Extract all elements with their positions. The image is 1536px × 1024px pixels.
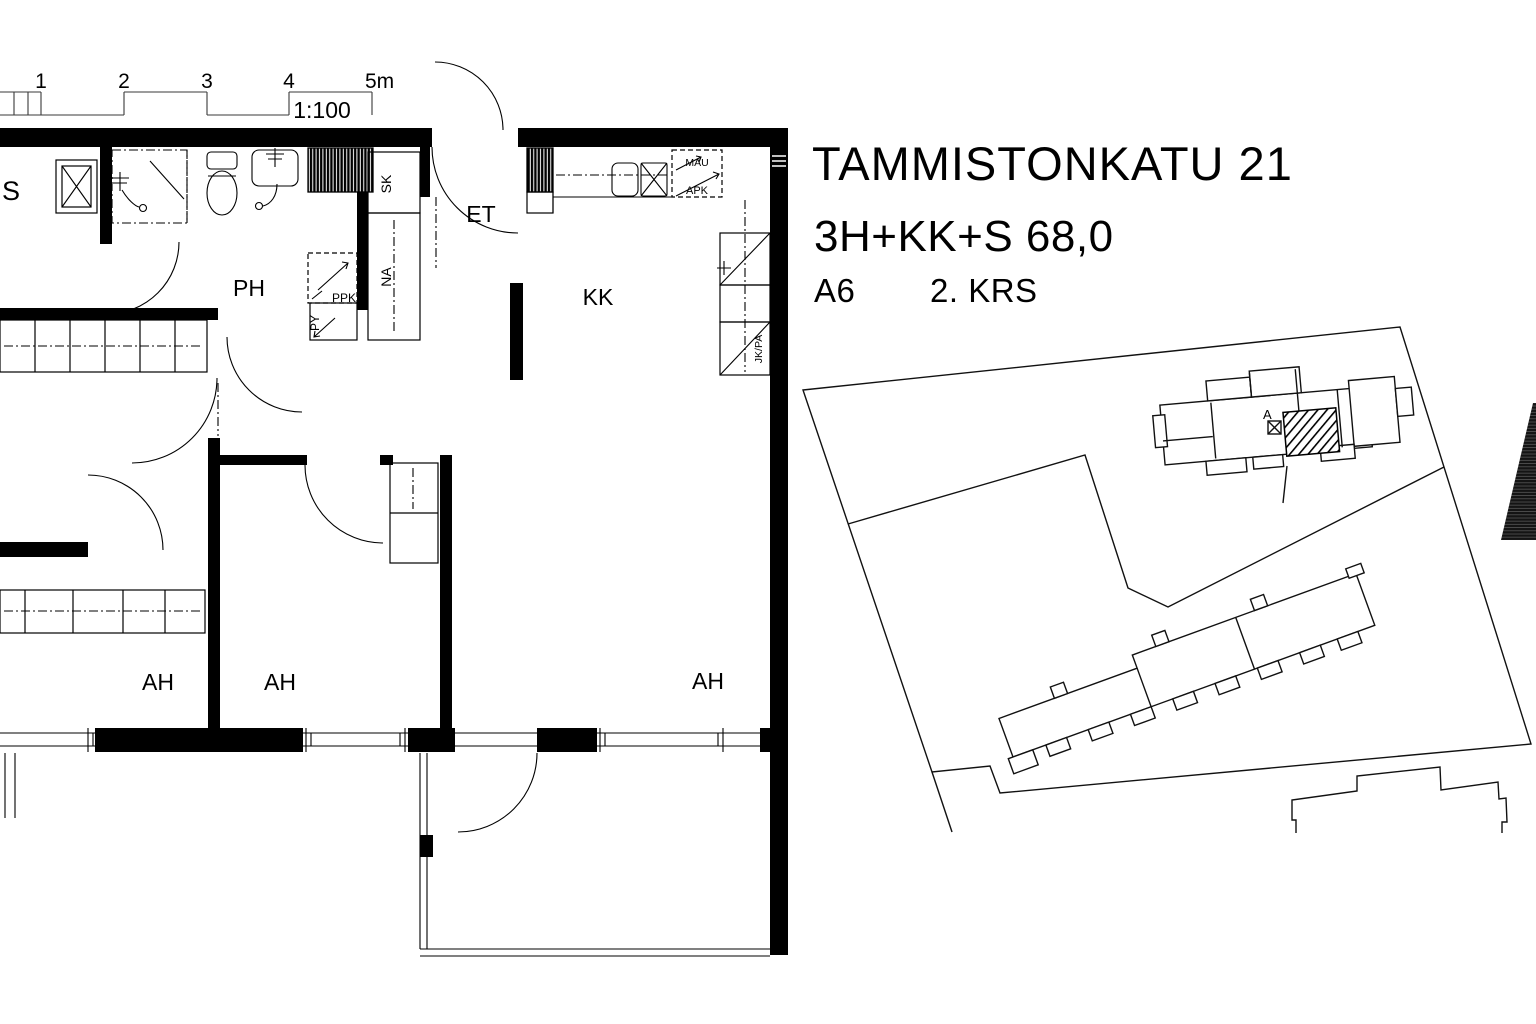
wall-thin-segment xyxy=(725,733,760,746)
scale-tick-2: 2 xyxy=(118,70,130,93)
window-room1 xyxy=(0,728,95,752)
shower-hose xyxy=(122,190,139,207)
building-block xyxy=(1249,367,1301,397)
room2-door-arc xyxy=(305,465,383,543)
wall-kitchen-stub xyxy=(510,283,523,380)
room-labels: S PH ET KK AH AH AH SK NA PPK PY MAU APK… xyxy=(2,157,765,695)
architectural-drawing-sheet: 1 2 3 4 5m 1:100 xyxy=(0,0,1536,1024)
title-layout-area: 3H+KK+S 68,0 xyxy=(814,212,1114,261)
wall-top-left xyxy=(0,128,432,147)
label-dishwasher: APK xyxy=(686,185,709,197)
shower-slope-line xyxy=(150,161,184,199)
title-address: TAMMISTONKATU 21 xyxy=(812,137,1293,190)
room-label-kitchenette: KK xyxy=(583,284,614,310)
room-label-room3: AH xyxy=(692,668,724,694)
site-building-long xyxy=(985,560,1387,774)
label-coat-closet: NA xyxy=(378,267,394,287)
label-broom-closet: SK xyxy=(378,174,394,193)
stove-cross-icon xyxy=(641,163,667,196)
site-boundary-extension xyxy=(932,772,952,832)
wall-entry-left xyxy=(420,147,430,197)
shaft-bathroom xyxy=(308,148,373,192)
service-shafts xyxy=(308,148,553,213)
wall-bottom-4 xyxy=(760,728,788,752)
site-building-bottom-outline xyxy=(1292,767,1507,833)
label-washer: PPK xyxy=(332,291,356,305)
toilet-tank xyxy=(207,152,237,169)
scale-tick-3: 3 xyxy=(201,70,213,93)
basin-drain-icon xyxy=(256,203,263,210)
scale-bar: 1 2 3 4 5m 1:100 xyxy=(0,70,394,123)
entry-door-outside-arc xyxy=(435,62,503,130)
site-plan: A xyxy=(803,327,1536,833)
label-fridge-freezer: JK/PA xyxy=(753,335,765,363)
room-label-sauna: S xyxy=(2,176,20,206)
title-unit: A6 xyxy=(814,272,855,309)
toilet-bowl xyxy=(207,171,237,215)
scale-tick-4: 4 xyxy=(283,70,295,93)
apartment-location-hatch xyxy=(1283,408,1340,456)
wall-bottom-1 xyxy=(95,728,303,752)
wall-bottom-2 xyxy=(408,728,455,752)
room1-door-arc xyxy=(88,475,163,550)
window-room2 xyxy=(303,728,408,752)
balcony-door-threshold xyxy=(455,733,537,746)
wall-bath-right xyxy=(357,190,368,310)
wall-room1-top xyxy=(0,542,88,557)
hall-door-arc-1 xyxy=(132,378,217,463)
building-block xyxy=(1348,377,1400,447)
wall-hall-rooms xyxy=(208,438,220,730)
bathroom-door-arc xyxy=(107,242,179,314)
balcony-door-arc xyxy=(458,753,537,832)
basin-drain-pipe xyxy=(263,184,277,206)
site-building-upper xyxy=(1150,357,1418,479)
floor-plan-walls xyxy=(0,128,788,955)
title-floor: 2. KRS xyxy=(930,272,1038,309)
wall-room2-top xyxy=(220,455,307,465)
window-room3 xyxy=(597,728,725,752)
label-linen: PY xyxy=(308,315,322,331)
wall-right xyxy=(770,147,788,955)
wall-room2-right xyxy=(440,455,452,730)
hall-door-arc-2 xyxy=(227,337,302,412)
shower-area xyxy=(112,150,187,223)
water-point-icon xyxy=(717,261,731,275)
title-block: TAMMISTONKATU 21 3H+KK+S 68,0 A6 2. KRS xyxy=(812,137,1293,309)
balcony-outline xyxy=(420,753,787,956)
label-microwave: MAU xyxy=(685,157,708,169)
shaft-kitchen xyxy=(527,148,553,192)
shaft-kitchen-box xyxy=(527,192,553,213)
building-long-outline xyxy=(994,574,1375,757)
floor-drain-icon xyxy=(140,205,147,212)
basin-tap-icon xyxy=(266,148,284,167)
floorplan-drawing: 1 2 3 4 5m 1:100 xyxy=(0,0,1536,1024)
sauna-fixtures xyxy=(56,160,97,213)
neighbor-balcony-edge xyxy=(5,753,15,818)
site-dark-wedge xyxy=(1501,403,1536,540)
site-boundary xyxy=(803,327,1531,793)
room-label-bathroom: PH xyxy=(233,275,265,301)
sauna-stove-cross xyxy=(62,166,91,207)
broom-closet-box xyxy=(368,152,420,213)
scale-ratio: 1:100 xyxy=(293,97,351,123)
balcony xyxy=(5,753,787,956)
building-block xyxy=(1206,377,1252,401)
room-label-entry: ET xyxy=(466,201,495,227)
wall-bottom-3 xyxy=(537,728,597,752)
building-block xyxy=(1153,415,1168,448)
wall-sauna-bath xyxy=(100,147,112,244)
building-block xyxy=(1253,455,1284,470)
scale-tick-1: 1 xyxy=(35,70,47,93)
building-block xyxy=(1395,387,1413,416)
site-stairwell-label: A xyxy=(1263,407,1272,422)
wall-top-right xyxy=(518,128,788,147)
building-notch xyxy=(1346,563,1364,578)
building-block xyxy=(1206,458,1247,475)
shower-tap-icon xyxy=(112,172,129,191)
kitchen-counter-edge xyxy=(553,192,672,213)
room-label-room2: AH xyxy=(264,669,296,695)
kitchen-sink xyxy=(612,163,638,196)
scale-tick-5: 5m xyxy=(365,70,394,93)
room-label-room1: AH xyxy=(142,669,174,695)
